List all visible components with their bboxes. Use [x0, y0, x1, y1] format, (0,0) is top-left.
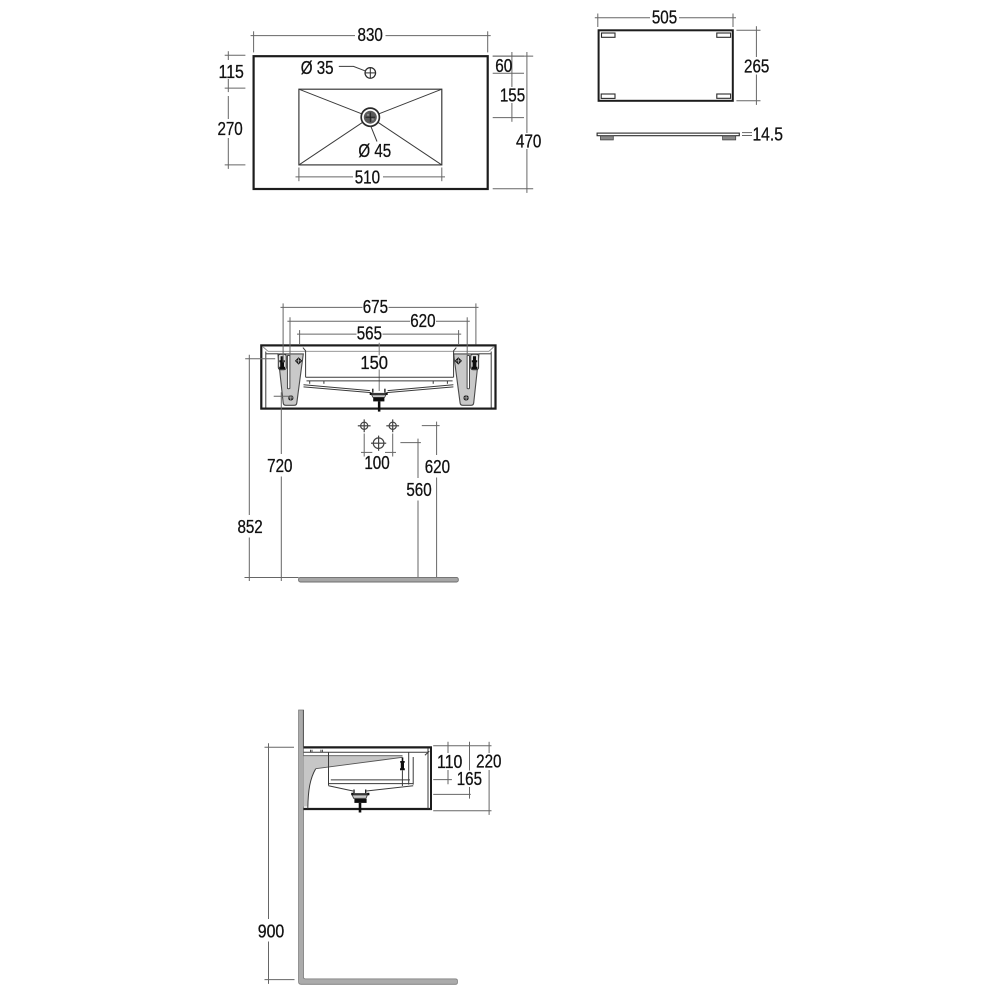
svg-text:155: 155: [500, 84, 525, 105]
svg-text:150: 150: [360, 352, 388, 373]
svg-text:Ø 35: Ø 35: [301, 57, 334, 78]
svg-text:620: 620: [410, 310, 435, 331]
svg-text:852: 852: [237, 516, 262, 537]
svg-text:720: 720: [267, 455, 292, 476]
svg-text:115: 115: [219, 61, 244, 82]
svg-text:165: 165: [457, 768, 482, 789]
svg-text:565: 565: [357, 323, 382, 344]
svg-text:14.5: 14.5: [752, 124, 783, 145]
svg-text:505: 505: [652, 6, 677, 27]
svg-text:675: 675: [363, 296, 388, 317]
svg-text:60: 60: [495, 55, 512, 76]
svg-text:470: 470: [516, 130, 541, 151]
svg-text:270: 270: [217, 118, 242, 139]
svg-text:265: 265: [744, 55, 769, 76]
svg-text:Ø 45: Ø 45: [358, 140, 391, 161]
svg-text:830: 830: [358, 24, 383, 45]
svg-text:100: 100: [364, 452, 389, 473]
svg-text:900: 900: [258, 920, 285, 941]
svg-text:560: 560: [406, 479, 431, 500]
svg-text:620: 620: [425, 456, 450, 477]
svg-text:510: 510: [355, 167, 380, 188]
